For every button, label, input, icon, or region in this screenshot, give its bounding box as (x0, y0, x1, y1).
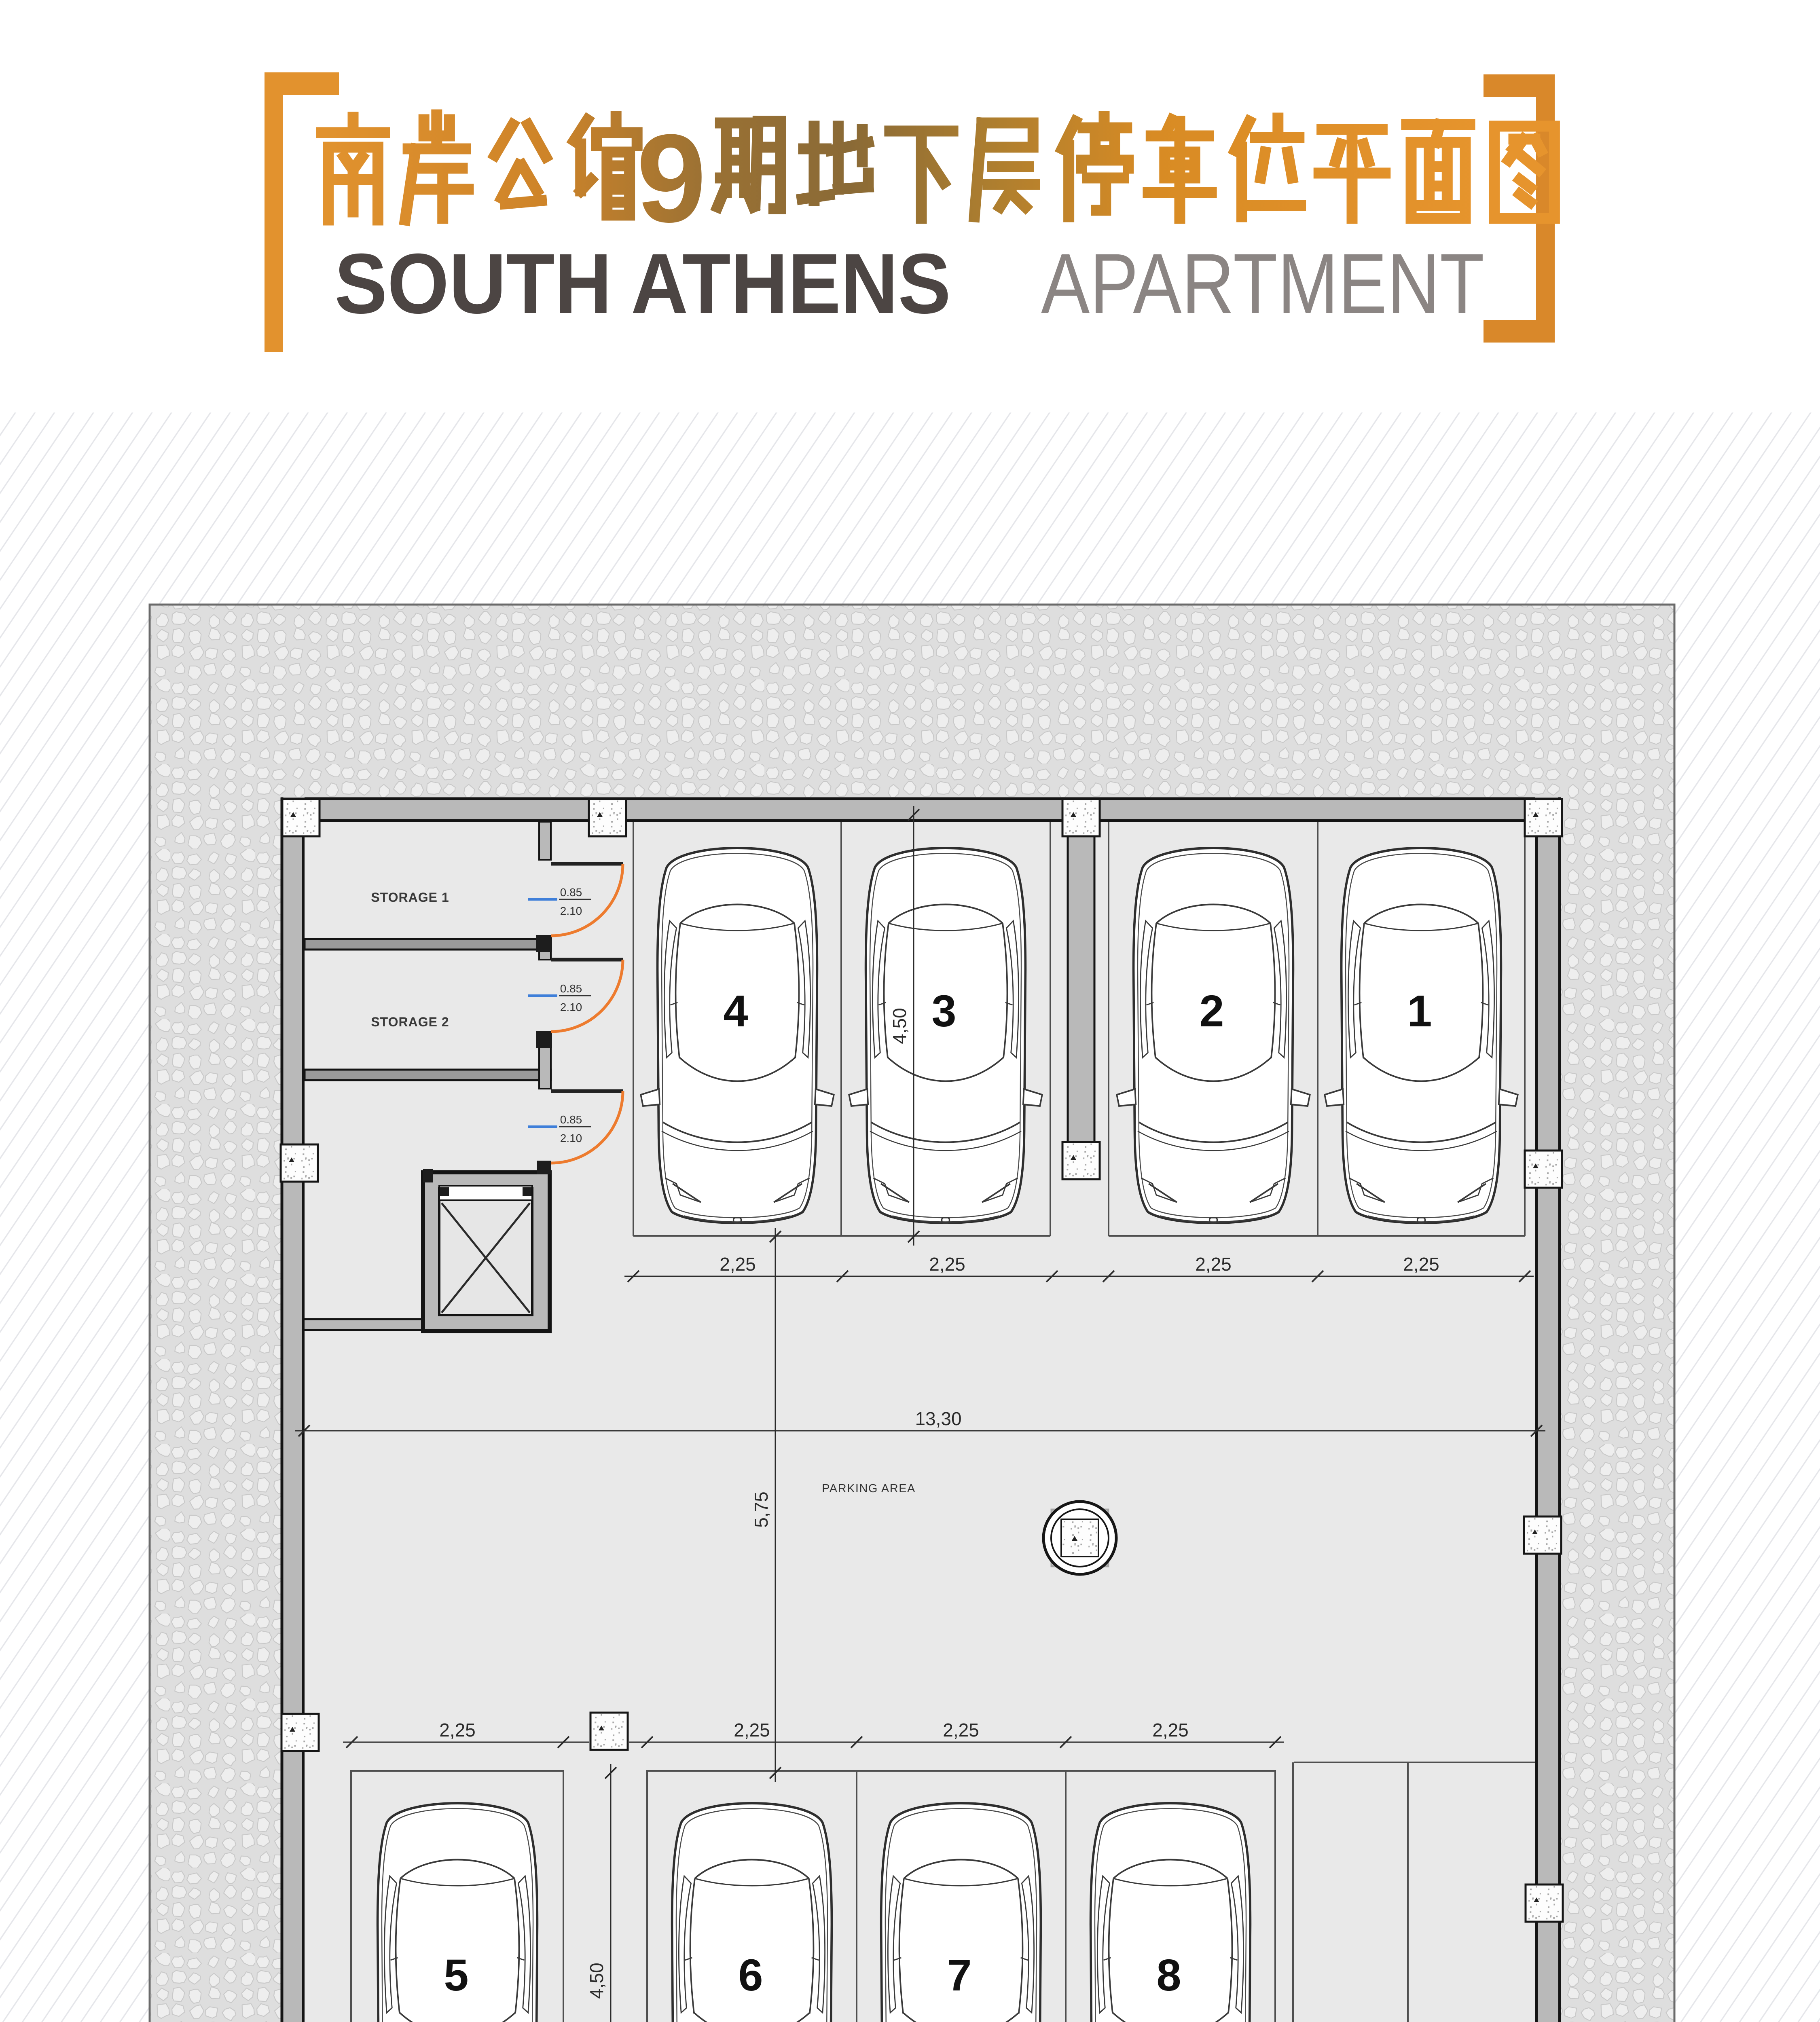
svg-text:0.85: 0.85 (560, 1113, 582, 1126)
svg-text:APARTMENT: APARTMENT (1041, 236, 1484, 331)
svg-text:7: 7 (947, 1950, 971, 2000)
svg-text:2.10: 2.10 (560, 905, 582, 917)
svg-text:8: 8 (1156, 1950, 1181, 2000)
svg-text:2,25: 2,25 (929, 1254, 965, 1275)
svg-text:PARKING AREA: PARKING AREA (822, 1482, 916, 1495)
svg-text:STORAGE 1: STORAGE 1 (371, 890, 449, 905)
svg-text:0.85: 0.85 (560, 982, 582, 995)
svg-text:1: 1 (1407, 986, 1432, 1036)
svg-text:2,25: 2,25 (1195, 1254, 1232, 1275)
svg-text:5: 5 (444, 1950, 468, 2000)
svg-text:2: 2 (1199, 986, 1224, 1036)
svg-text:2,25: 2,25 (439, 1720, 476, 1741)
svg-text:2,25: 2,25 (943, 1720, 979, 1741)
svg-text:2,25: 2,25 (1152, 1720, 1189, 1741)
svg-text:4,50: 4,50 (889, 1008, 910, 1044)
svg-text:2,25: 2,25 (734, 1720, 770, 1741)
svg-text:13,30: 13,30 (915, 1408, 961, 1429)
svg-text:5,75: 5,75 (751, 1491, 772, 1528)
svg-text:SOUTH ATHENS: SOUTH ATHENS (334, 236, 951, 331)
svg-text:4,50: 4,50 (586, 1963, 607, 1999)
svg-text:9: 9 (637, 108, 706, 248)
svg-text:0.85: 0.85 (560, 886, 582, 899)
svg-text:3: 3 (931, 986, 956, 1036)
svg-text:4: 4 (723, 986, 748, 1036)
svg-text:STORAGE 2: STORAGE 2 (371, 1015, 449, 1029)
svg-text:2,25: 2,25 (1403, 1254, 1439, 1275)
svg-text:2.10: 2.10 (560, 1001, 582, 1013)
svg-text:6: 6 (738, 1950, 763, 2000)
svg-text:2,25: 2,25 (720, 1254, 756, 1275)
svg-text:2.10: 2.10 (560, 1132, 582, 1144)
